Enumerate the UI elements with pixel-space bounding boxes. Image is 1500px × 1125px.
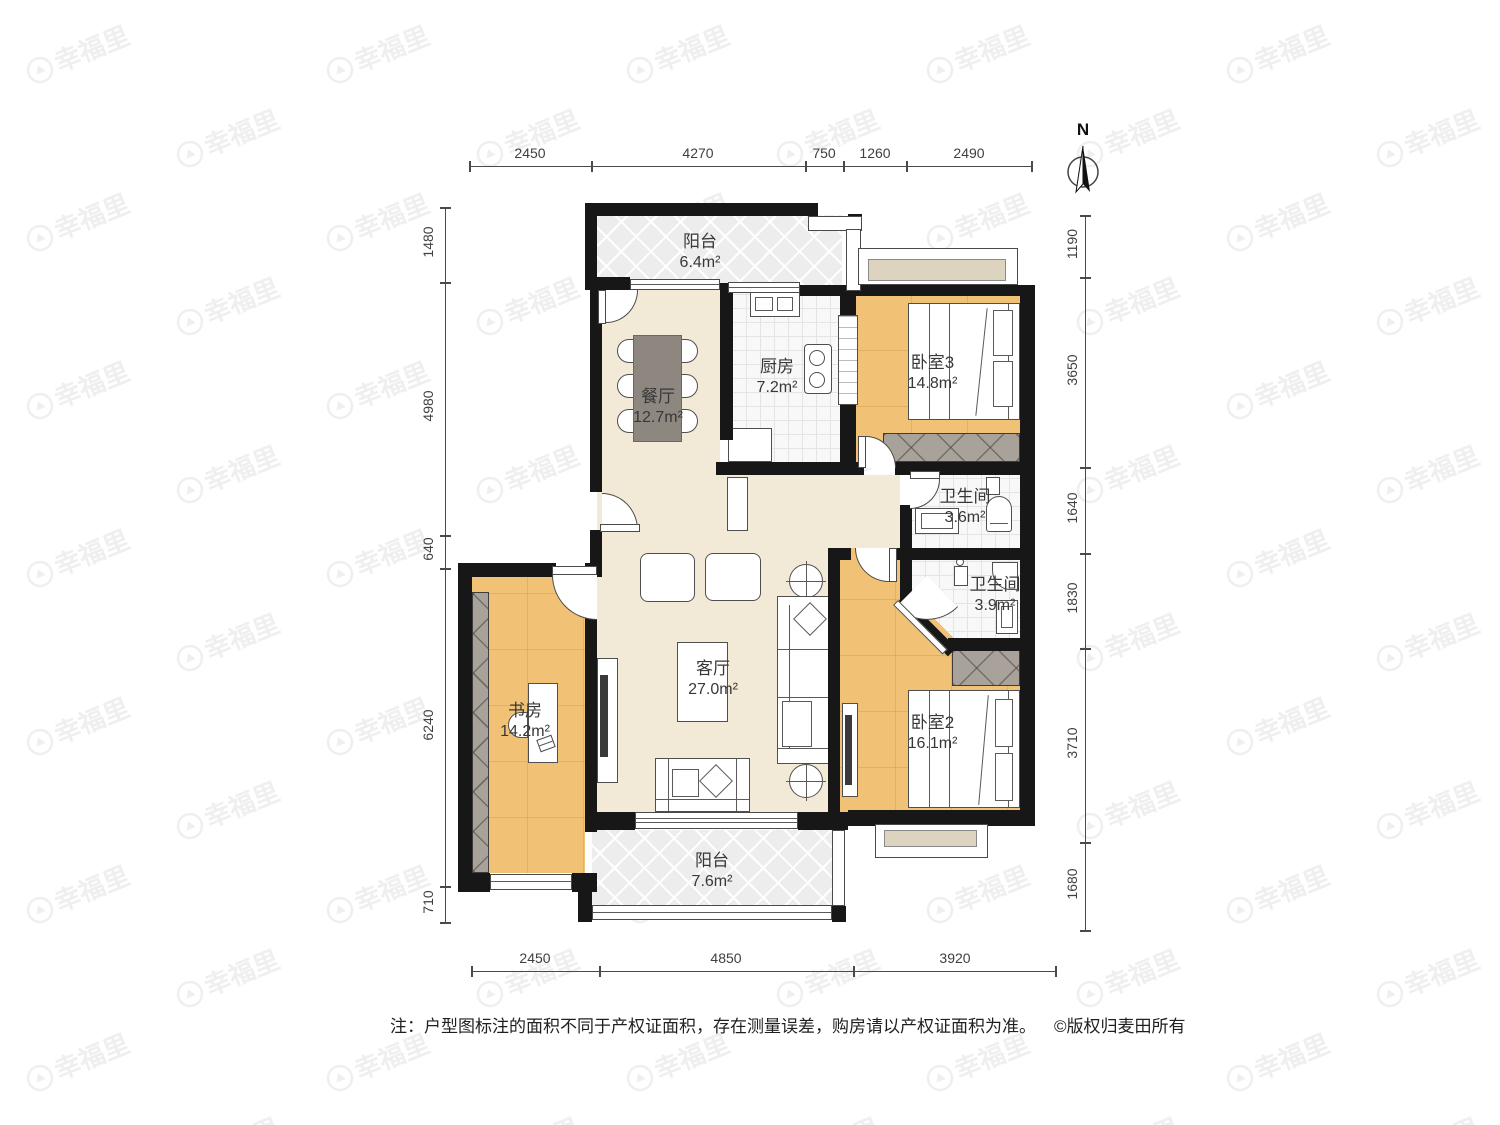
entry-door-leaf bbox=[600, 524, 640, 532]
dim-label: 710 bbox=[420, 870, 436, 934]
study-window bbox=[490, 874, 572, 890]
wall bbox=[900, 505, 912, 548]
hallway-floor bbox=[597, 475, 900, 548]
wall bbox=[458, 563, 472, 892]
room-label-bath-bottom: 卫生间 3.9m² bbox=[950, 574, 1040, 617]
room-name: 卧室2 bbox=[885, 712, 980, 734]
room-name: 厨房 bbox=[737, 356, 817, 378]
room-area: 27.0m² bbox=[668, 680, 758, 701]
dim-label: 4850 bbox=[694, 950, 758, 966]
wall bbox=[585, 812, 635, 830]
balcony-bottom-railing bbox=[592, 905, 832, 920]
room-area: 7.6m² bbox=[672, 872, 752, 893]
tick bbox=[1080, 930, 1091, 932]
dim-label: 1830 bbox=[1064, 566, 1080, 630]
wall bbox=[800, 285, 1035, 296]
dim-label: 1190 bbox=[1064, 212, 1080, 276]
dimension-line-top bbox=[469, 166, 1032, 167]
dim-label: 3710 bbox=[1064, 711, 1080, 775]
tick bbox=[1080, 277, 1091, 279]
dim-label: 1260 bbox=[843, 145, 907, 161]
room-name: 客厅 bbox=[668, 658, 758, 680]
wall bbox=[798, 812, 848, 830]
wall bbox=[716, 462, 845, 475]
north-label: N bbox=[1070, 120, 1096, 140]
room-name: 餐厅 bbox=[618, 386, 698, 408]
wall bbox=[828, 548, 840, 815]
bedroom2-wardrobe bbox=[952, 650, 1020, 686]
room-label-living: 客厅 27.0m² bbox=[668, 658, 758, 701]
bay-window-top bbox=[858, 248, 1018, 285]
copyright-text: ©版权归麦田所有 bbox=[1054, 1012, 1186, 1037]
tick bbox=[805, 161, 807, 172]
kitchen-cabinet bbox=[728, 428, 772, 462]
room-label-bath-top: 卫生间 3.6m² bbox=[925, 486, 1005, 529]
wall bbox=[948, 638, 1035, 651]
dim-label: 2450 bbox=[498, 145, 562, 161]
dimension-line-left bbox=[445, 207, 446, 922]
room-label-bedroom2: 卧室2 16.1m² bbox=[885, 712, 980, 755]
balcony-dining-window bbox=[630, 279, 720, 290]
tick bbox=[853, 966, 855, 977]
footer-note: 注：户型图标注的面积不同于产权证面积，存在测量误差，购房请以产权证面积为准。 ©… bbox=[390, 1012, 1186, 1037]
disclaimer-text: 注：户型图标注的面积不同于产权证面积，存在测量误差，购房请以产权证面积为准。 bbox=[390, 1012, 1036, 1037]
wall bbox=[893, 548, 1035, 560]
dim-label: 2490 bbox=[937, 145, 1001, 161]
room-area: 14.8m² bbox=[885, 374, 980, 395]
tv-screen bbox=[600, 675, 608, 757]
tv-screen bbox=[845, 715, 852, 785]
tick bbox=[471, 966, 473, 977]
dim-label: 1480 bbox=[420, 210, 436, 274]
room-name: 卫生间 bbox=[925, 486, 1005, 508]
room-name: 阳台 bbox=[672, 850, 752, 872]
dimension-line-bottom bbox=[471, 971, 1056, 972]
tick bbox=[440, 568, 451, 570]
balcony-door-leaf bbox=[598, 290, 606, 324]
balcony-right-railing bbox=[832, 830, 845, 906]
room-label-dining: 餐厅 12.7m² bbox=[618, 386, 698, 429]
fan-symbol bbox=[789, 564, 823, 598]
tick bbox=[440, 207, 451, 209]
bay-window-bottom bbox=[875, 824, 988, 858]
tick bbox=[440, 886, 451, 888]
room-name: 书房 bbox=[480, 700, 570, 722]
living-sliding-window bbox=[635, 812, 798, 829]
tick bbox=[440, 922, 451, 924]
room-label-kitchen: 厨房 7.2m² bbox=[737, 356, 817, 399]
tick bbox=[469, 161, 471, 172]
dim-label: 3650 bbox=[1064, 338, 1080, 402]
tick bbox=[440, 535, 451, 537]
armchair bbox=[705, 553, 761, 601]
room-area: 12.7m² bbox=[618, 408, 698, 429]
loveseat bbox=[655, 758, 750, 812]
dim-label: 4980 bbox=[420, 374, 436, 438]
dim-label: 4270 bbox=[666, 145, 730, 161]
room-name: 卧室3 bbox=[885, 352, 980, 374]
tick bbox=[1080, 648, 1091, 650]
dim-label: 1680 bbox=[1064, 852, 1080, 916]
room-area: 16.1m² bbox=[885, 734, 980, 755]
tick bbox=[1031, 161, 1033, 172]
dim-label: 640 bbox=[420, 517, 436, 581]
tick bbox=[1080, 842, 1091, 844]
room-area: 7.2m² bbox=[737, 378, 817, 399]
room-area: 6.4m² bbox=[660, 253, 740, 274]
tick bbox=[1080, 215, 1091, 217]
wall bbox=[578, 874, 592, 922]
dim-label: 3920 bbox=[923, 950, 987, 966]
dimension-line-right bbox=[1085, 215, 1086, 930]
armchair bbox=[640, 553, 695, 602]
dim-label: 2450 bbox=[503, 950, 567, 966]
room-label-study: 书房 14.2m² bbox=[480, 700, 570, 743]
wall bbox=[585, 203, 818, 216]
room-area: 3.6m² bbox=[925, 508, 1005, 529]
bedroom3-door-leaf bbox=[858, 436, 866, 468]
tick bbox=[1055, 966, 1057, 977]
tick bbox=[1080, 467, 1091, 469]
study-door-leaf bbox=[552, 566, 597, 575]
room-area: 3.9m² bbox=[950, 596, 1040, 617]
dim-label: 6240 bbox=[420, 693, 436, 757]
tick bbox=[1080, 553, 1091, 555]
compass-icon bbox=[1061, 140, 1105, 200]
bedroom2-door-leaf bbox=[889, 548, 897, 582]
kitchen-sink bbox=[750, 291, 800, 317]
room-name: 阳台 bbox=[660, 231, 740, 253]
tick bbox=[591, 161, 593, 172]
dim-label: 1640 bbox=[1064, 476, 1080, 540]
floorplan-page: 幸福里 bbox=[0, 0, 1500, 1125]
room-name: 卫生间 bbox=[950, 574, 1040, 596]
room-label-bedroom3: 卧室3 14.8m² bbox=[885, 352, 980, 395]
wall bbox=[458, 873, 490, 892]
wall bbox=[832, 906, 846, 922]
bath-top-door-leaf bbox=[910, 471, 940, 479]
fridge bbox=[727, 477, 748, 531]
room-label-balcony-top: 阳台 6.4m² bbox=[660, 231, 740, 274]
wall bbox=[720, 283, 733, 440]
room-label-balcony-bottom: 阳台 7.6m² bbox=[672, 850, 752, 893]
wall bbox=[458, 563, 556, 577]
fan-symbol bbox=[789, 764, 823, 798]
bedroom3-wardrobe bbox=[883, 433, 1020, 462]
tick bbox=[599, 966, 601, 977]
kitchen-window bbox=[728, 282, 800, 293]
tick bbox=[440, 282, 451, 284]
radiator bbox=[838, 315, 858, 405]
room-area: 14.2m² bbox=[480, 722, 570, 743]
tick bbox=[906, 161, 908, 172]
tick bbox=[843, 161, 845, 172]
